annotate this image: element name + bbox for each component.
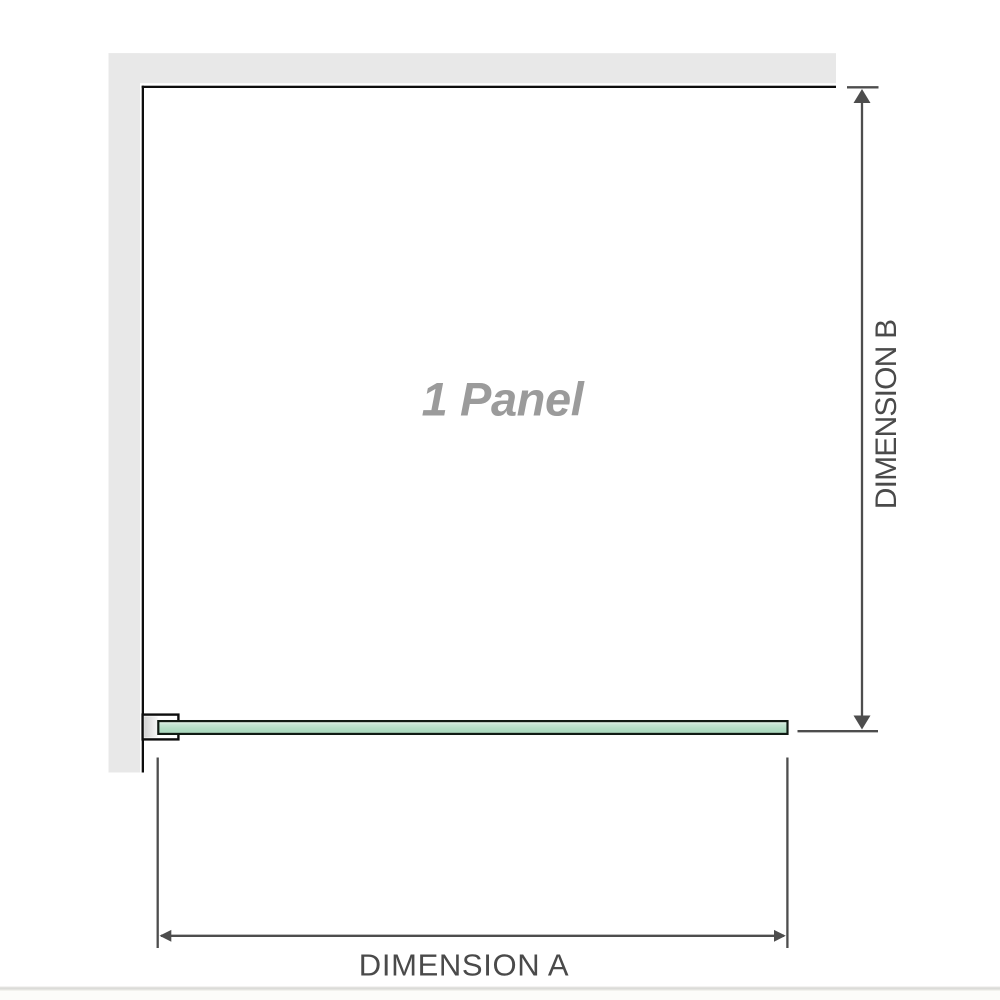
svg-text:1 Panel: 1 Panel [422, 372, 585, 425]
svg-text:DIMENSION B: DIMENSION B [870, 320, 903, 510]
svg-text:DIMENSION A: DIMENSION A [359, 947, 569, 982]
